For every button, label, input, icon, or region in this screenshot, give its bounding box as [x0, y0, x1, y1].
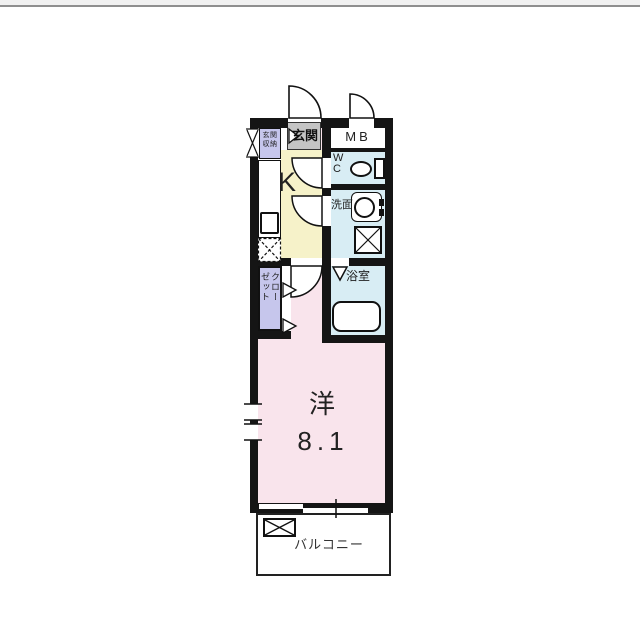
wall-kitchen-wc-2 [322, 188, 331, 196]
bathroom-label: 浴室 [343, 270, 373, 283]
washbasin-bowl-icon [354, 197, 375, 218]
toilet-label: W C [333, 153, 346, 175]
balcony-storage-icon [263, 518, 296, 537]
toilet-tank-icon [374, 158, 385, 179]
closet-door-strip [282, 266, 291, 331]
door-gap-wc [322, 158, 331, 188]
balcony-label: バルコニー [286, 538, 372, 552]
wall-closet-top [250, 258, 291, 266]
floorplan-screenshot: 玄関 収納 玄関 MB K W C 洗面 浴室 クロー ゼット 洋 8.1 バル… [0, 0, 640, 630]
entrance-door-swing-icon [289, 86, 321, 118]
door-gap-bath [331, 258, 349, 266]
western-room-size: 8.1 [288, 427, 358, 456]
wall-top-right [374, 118, 393, 128]
wall-kitchen-wc-1 [322, 128, 331, 158]
washing-machine-icon [354, 226, 382, 254]
door-gap-washroom [322, 196, 331, 226]
mb-door-swing-icon [350, 94, 374, 118]
closet-label: クロー ゼット [260, 272, 280, 327]
door-gap-room [291, 258, 322, 266]
window-left-2 [249, 424, 258, 440]
window-entrance-side [247, 129, 258, 157]
wall-top-left [250, 118, 288, 128]
wall-bath-bottom [322, 335, 393, 343]
wall-left [250, 128, 258, 513]
page-top-divider [0, 5, 640, 7]
kitchen-label: K [274, 168, 300, 198]
wall-wc-bottom [331, 184, 385, 190]
wall-right [385, 128, 393, 513]
wall-kitchen-wc-3 [322, 226, 331, 343]
window-bottom-left-pane [259, 504, 303, 509]
toilet-icon [350, 161, 372, 177]
wall-washroom-bath [349, 258, 385, 266]
bathtub-icon [332, 301, 381, 332]
entrance-label: 玄関 [289, 129, 321, 143]
window-left-1 [249, 404, 258, 420]
wall-top-mid [321, 118, 349, 128]
washroom-label: 洗面 [331, 199, 355, 211]
entrance-storage-label: 玄関 収納 [260, 131, 280, 149]
meter-box-label: MB [331, 130, 385, 144]
western-room-label: 洋 [305, 390, 339, 419]
kitchen-sink-icon [260, 212, 279, 234]
wall-closet-bottom [250, 331, 291, 339]
